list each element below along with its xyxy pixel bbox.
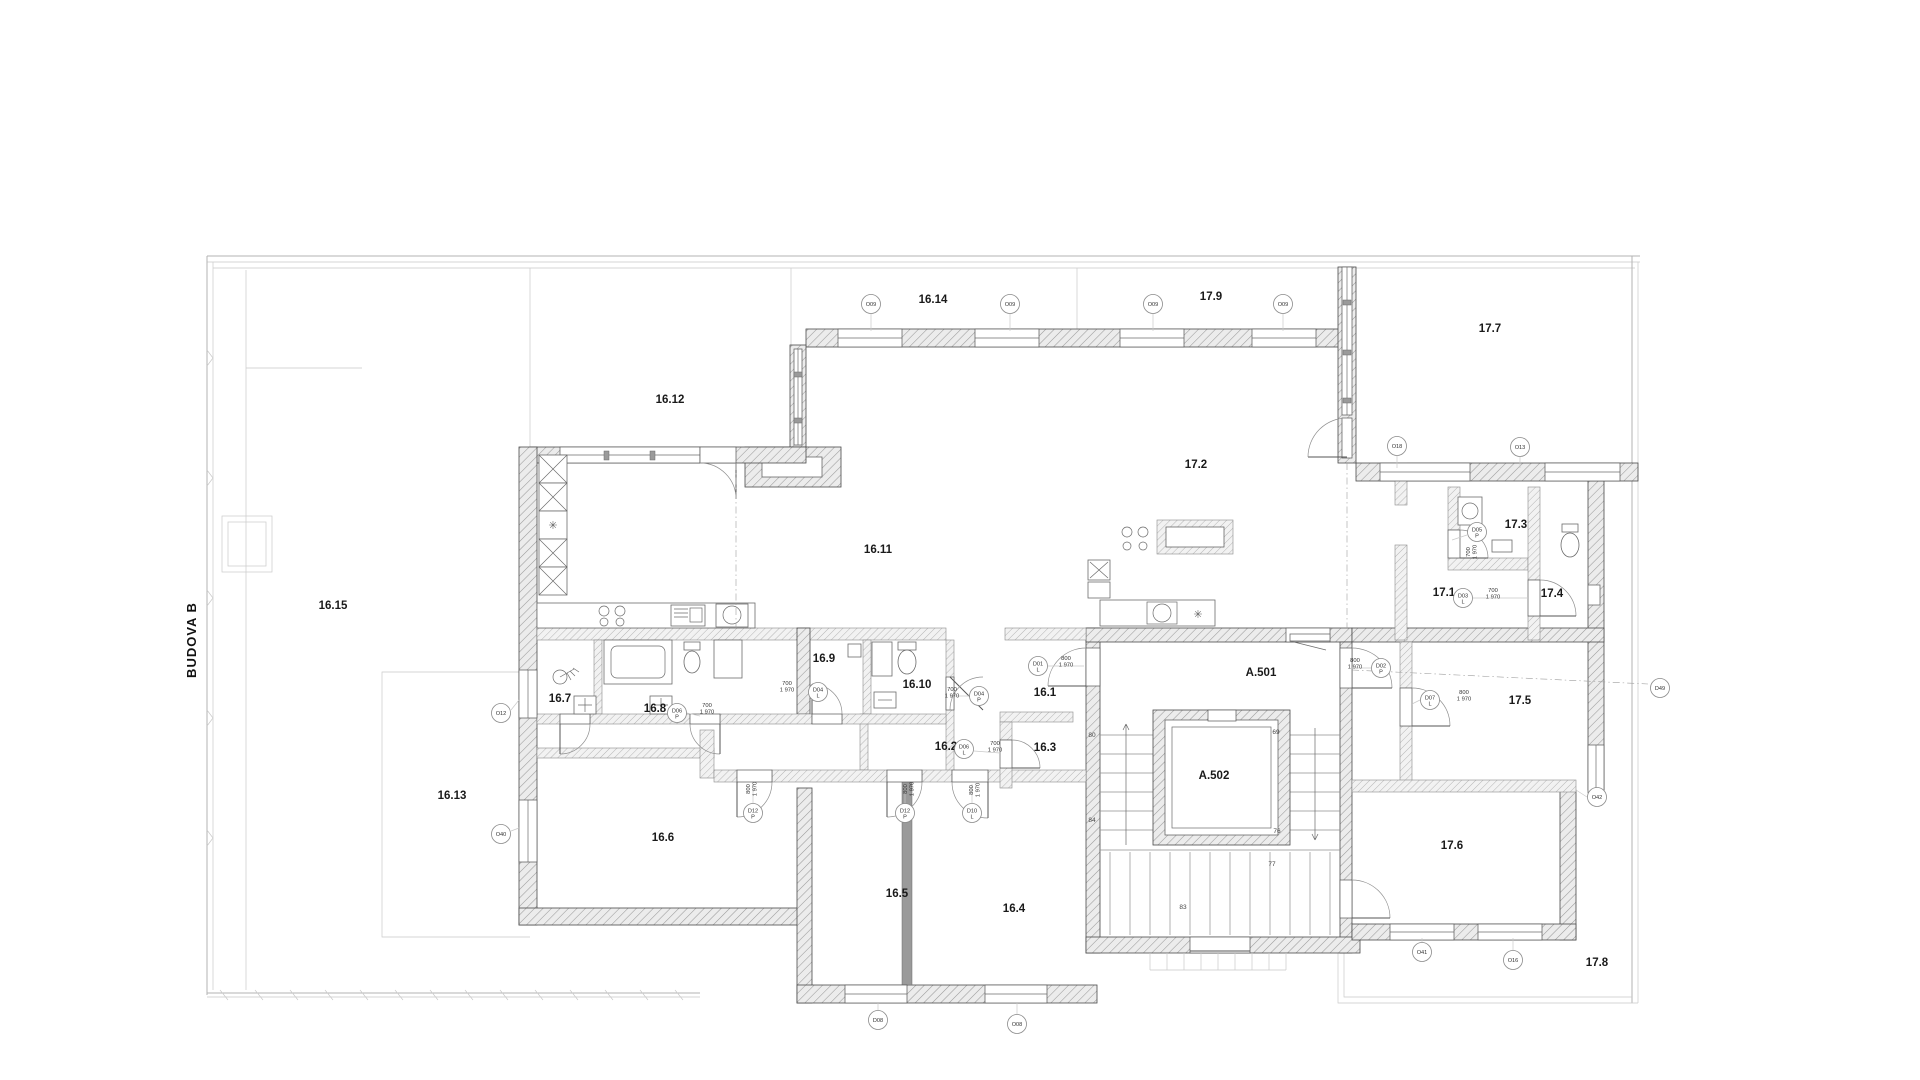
marker-d05: D05P xyxy=(1468,523,1487,542)
svg-text:1 970: 1 970 xyxy=(1348,665,1363,671)
stair-step-number: 77 xyxy=(1268,861,1276,868)
svg-text:P: P xyxy=(675,715,679,721)
room-label-17.4: 17.4 xyxy=(1541,588,1564,600)
door-dimension: 8001 970 xyxy=(969,783,982,798)
door-d01 xyxy=(1048,648,1100,686)
room-label-17.3: 17.3 xyxy=(1505,519,1527,531)
marker-d12: D12P xyxy=(896,804,915,823)
svg-text:O09: O09 xyxy=(866,302,877,308)
marker-o42: O42 xyxy=(1588,788,1607,807)
svg-text:800: 800 xyxy=(1459,690,1469,696)
glazed-wall-17-9 xyxy=(1342,267,1352,415)
svg-text:O13: O13 xyxy=(1515,445,1526,451)
svg-text:L: L xyxy=(1428,702,1431,708)
svg-text:L: L xyxy=(1036,668,1039,674)
door-17-2-terrace xyxy=(1308,418,1352,458)
marker-d04: D04P xyxy=(970,687,989,706)
marker-d04: D04L xyxy=(809,683,828,702)
svg-text:800: 800 xyxy=(1350,658,1360,664)
svg-text:P: P xyxy=(977,698,981,704)
window-o13 xyxy=(1545,463,1620,481)
window-o41 xyxy=(1390,924,1454,940)
cooktop-icon-17 xyxy=(1122,527,1148,550)
marker-o16: O16 xyxy=(1504,951,1523,970)
svg-text:700: 700 xyxy=(1488,588,1498,594)
building-label: BUDOVA B xyxy=(184,602,199,678)
marker-o09: O09 xyxy=(1144,295,1163,314)
marker-d01: D01L xyxy=(1029,657,1048,676)
room-label-16.1: 16.1 xyxy=(1034,687,1057,699)
window-16-12 xyxy=(560,447,700,463)
svg-text:D49: D49 xyxy=(1655,686,1665,692)
svg-text:L: L xyxy=(1461,600,1464,606)
room-label-16.14: 16.14 xyxy=(919,294,948,306)
room-label-16.6: 16.6 xyxy=(652,832,674,844)
door-dimension: 7001 970 xyxy=(700,703,715,716)
kitchen-16-11: ✳ xyxy=(537,455,755,628)
room-label-16.13: 16.13 xyxy=(438,790,467,802)
svg-text:P: P xyxy=(1475,534,1479,540)
door-17-6 xyxy=(1340,880,1390,918)
svg-text:700: 700 xyxy=(782,681,792,687)
marker-d06: D06P xyxy=(668,704,687,723)
marker-o09: O09 xyxy=(862,295,881,314)
marker-o41: O41 xyxy=(1413,943,1432,962)
svg-text:O09: O09 xyxy=(1148,302,1159,308)
floor-plan-page: ✳ ✳ xyxy=(0,0,1920,1080)
room-label-17.6: 17.6 xyxy=(1441,840,1463,852)
door-dimension: 8001 970 xyxy=(746,782,759,797)
svg-text:1 970: 1 970 xyxy=(976,783,982,798)
door-dimension: 8001 970 xyxy=(1059,656,1074,669)
window-o09-3 xyxy=(1120,329,1184,347)
svg-text:700: 700 xyxy=(947,687,957,693)
svg-text:O42: O42 xyxy=(1592,795,1603,801)
svg-text:1 970: 1 970 xyxy=(988,748,1003,754)
room-label-17.7: 17.7 xyxy=(1479,323,1501,335)
svg-text:1 970: 1 970 xyxy=(1473,545,1479,560)
glazed-wall-16-12 xyxy=(794,349,802,445)
fridge-icon xyxy=(1088,560,1110,598)
window-o12 xyxy=(519,670,537,718)
room-label-16.4: 16.4 xyxy=(1003,903,1026,915)
svg-text:P: P xyxy=(903,815,907,821)
doors xyxy=(560,418,1576,953)
marker-d07: D07L xyxy=(1421,691,1440,710)
stair-step-number: 83 xyxy=(1179,904,1187,911)
toilet-icon-17-4 xyxy=(1561,524,1579,557)
window-o40 xyxy=(519,800,537,862)
marker-o18: O18 xyxy=(1388,437,1407,456)
room-label-16.11: 16.11 xyxy=(864,544,893,556)
svg-text:L: L xyxy=(970,815,973,821)
svg-text:O16: O16 xyxy=(1508,958,1519,964)
marker-d08: D08 xyxy=(869,1011,888,1030)
cabinet-16-10 xyxy=(872,642,892,676)
door-dimension: 7001 970 xyxy=(780,681,795,694)
svg-text:O41: O41 xyxy=(1417,950,1428,956)
room-label-17.2: 17.2 xyxy=(1185,459,1207,471)
room-label-16.8: 16.8 xyxy=(644,703,667,715)
room-label-16.12: 16.12 xyxy=(656,394,685,406)
shower-icon xyxy=(553,668,579,684)
svg-text:800: 800 xyxy=(969,785,975,795)
svg-text:✳: ✳ xyxy=(548,520,557,532)
svg-text:O09: O09 xyxy=(1278,302,1289,308)
window-o09-4 xyxy=(1252,329,1316,347)
door-dimension: 8001 970 xyxy=(1457,690,1472,703)
svg-text:800: 800 xyxy=(746,784,752,794)
kitchen-17-2: ✳ xyxy=(1088,520,1233,626)
door-dimension: 8001 970 xyxy=(1348,658,1363,671)
svg-text:700: 700 xyxy=(1466,547,1472,557)
room-label-16.7: 16.7 xyxy=(549,693,571,705)
sink-icon-17-3 xyxy=(1492,540,1512,552)
svg-text:O18: O18 xyxy=(1392,444,1403,450)
marker-d49: D49 xyxy=(1651,679,1670,698)
svg-text:D08: D08 xyxy=(873,1018,883,1024)
room-label-16.2: 16.2 xyxy=(935,741,957,753)
svg-text:O09: O09 xyxy=(1005,302,1016,308)
marker-o40: O40 xyxy=(492,825,511,844)
room-label-17.9: 17.9 xyxy=(1200,291,1222,303)
marker-o13: O13 xyxy=(1511,438,1530,457)
door-dimension: 7001 970 xyxy=(1486,588,1501,601)
dishwasher-icon: ✳ xyxy=(1193,609,1202,621)
marker-o09: O09 xyxy=(1001,295,1020,314)
svg-text:O08: O08 xyxy=(1012,1022,1023,1028)
room-label-A.501: A.501 xyxy=(1246,667,1277,679)
window-o42 xyxy=(1588,745,1604,793)
room-label-16.3: 16.3 xyxy=(1034,742,1056,754)
room-label-17.8: 17.8 xyxy=(1586,957,1609,969)
bathtub-icon xyxy=(604,640,672,684)
cabinet-column: ✳ xyxy=(539,455,567,595)
sink-icon-17-4 xyxy=(1588,585,1600,605)
svg-text:1 970: 1 970 xyxy=(753,782,759,797)
window-o08 xyxy=(985,985,1047,1003)
marker-d02: D02P xyxy=(1372,659,1391,678)
room-label-16.15: 16.15 xyxy=(319,600,348,612)
svg-text:L: L xyxy=(962,751,965,757)
entry-door xyxy=(1190,937,1250,953)
window-o18 xyxy=(1380,463,1470,481)
room-label-16.5: 16.5 xyxy=(886,888,909,900)
svg-text:700: 700 xyxy=(990,741,1000,747)
marker-o09: O09 xyxy=(1274,295,1293,314)
toilet-icon-16-10 xyxy=(898,642,916,674)
room-label-16.9: 16.9 xyxy=(813,653,835,665)
window-d08 xyxy=(845,985,907,1003)
svg-text:1 970: 1 970 xyxy=(910,782,916,797)
marker-d03: D03L xyxy=(1454,589,1473,608)
svg-text:1 970: 1 970 xyxy=(1059,663,1074,669)
labels: BUDOVA B 16.1516.1216.1417.917.716.1117.… xyxy=(184,291,1670,1034)
svg-text:800: 800 xyxy=(1061,656,1071,662)
svg-text:1 970: 1 970 xyxy=(780,688,795,694)
floor-plan-drawing: ✳ ✳ xyxy=(0,0,1920,1080)
svg-text:O40: O40 xyxy=(496,832,507,838)
svg-text:1 970: 1 970 xyxy=(1486,595,1501,601)
room-label-17.1: 17.1 xyxy=(1433,587,1456,599)
stair-step-number: 80 xyxy=(1088,732,1096,739)
sink-icon xyxy=(716,604,748,627)
svg-text:O12: O12 xyxy=(496,711,507,717)
marker-d12: D12P xyxy=(744,804,763,823)
room-label-A.502: A.502 xyxy=(1199,770,1230,782)
marker-d10: D10L xyxy=(963,804,982,823)
svg-text:L: L xyxy=(816,694,819,700)
window-o16 xyxy=(1478,924,1542,940)
svg-text:700: 700 xyxy=(702,703,712,709)
marker-o12: O12 xyxy=(492,704,511,723)
svg-text:1 970: 1 970 xyxy=(700,710,715,716)
svg-text:P: P xyxy=(751,815,755,821)
toilet-icon-16-8 xyxy=(684,642,700,673)
door-dimension: 7001 970 xyxy=(1466,545,1479,560)
svg-text:1 970: 1 970 xyxy=(945,694,960,700)
sink-icon-16-9 xyxy=(848,644,861,657)
door-16-12 xyxy=(700,447,736,499)
room-label-17.5: 17.5 xyxy=(1509,695,1532,707)
washer-icon-17-3 xyxy=(1458,497,1482,525)
window-o09-2 xyxy=(975,329,1039,347)
stair-step-number: 76 xyxy=(1273,828,1281,835)
window-o09-1 xyxy=(838,329,902,347)
sink-icon-16-10 xyxy=(874,692,896,708)
oven-icon xyxy=(671,605,705,626)
svg-text:1 970: 1 970 xyxy=(1457,697,1472,703)
stair-step-number: 84 xyxy=(1088,817,1096,824)
svg-text:800: 800 xyxy=(903,784,909,794)
door-dimension: 7001 970 xyxy=(945,687,960,700)
marker-d06: D06L xyxy=(955,740,974,759)
stair-step-number: 69 xyxy=(1272,729,1280,736)
svg-text:P: P xyxy=(1379,670,1383,676)
room-label-16.10: 16.10 xyxy=(903,679,932,691)
marker-o08: O08 xyxy=(1008,1015,1027,1034)
door-sliding-17-2 xyxy=(1286,628,1330,650)
